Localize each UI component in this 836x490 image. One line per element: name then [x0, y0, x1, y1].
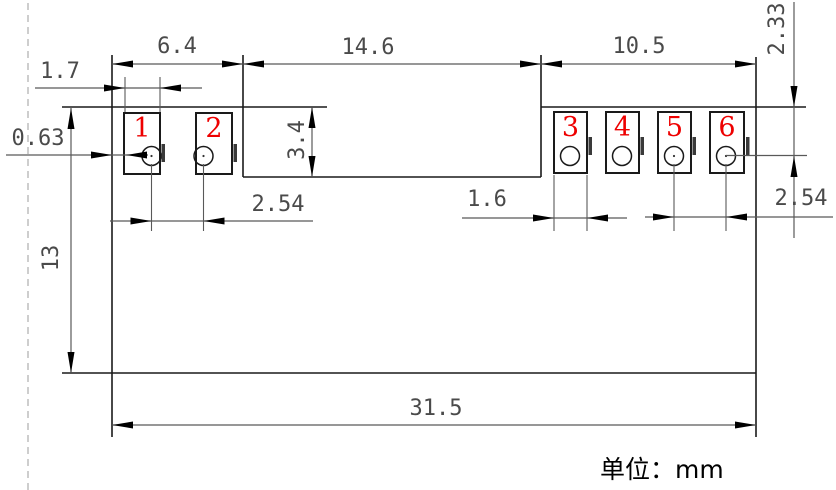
pad-4-stub	[641, 137, 645, 155]
arrow-2-33-bottom	[791, 156, 798, 177]
arrow-2-54-right-b	[726, 214, 747, 221]
pad-3-stub	[589, 137, 593, 155]
arrow-2-54-left-a	[131, 218, 152, 225]
dim-text-14-6: 14.6	[342, 35, 395, 60]
arrow-14-6-left	[243, 61, 264, 68]
arrow-1-6-b	[587, 215, 608, 222]
arrow-2-33-top	[791, 86, 798, 107]
arrow-13-bottom	[68, 352, 75, 373]
dimension-texts: 6.4 14.6 10.5 1.7 0.63 2.54 1.6 2.54 31.…	[12, 3, 828, 421]
dim-text-13: 13	[39, 245, 64, 272]
dim-text-2-54-right: 2.54	[775, 186, 828, 211]
arrow-0-63-left	[91, 152, 112, 159]
dimension-drawing-page: 1 2 3 4 5 6	[0, 0, 836, 490]
hole-1-center-dot	[150, 155, 152, 157]
pad-5-stub	[693, 137, 697, 155]
arrow-2-54-left-b	[204, 218, 225, 225]
hole-2-center-dot	[202, 155, 204, 157]
arrow-14-6-right	[520, 61, 541, 68]
arrow-10-5-right	[735, 61, 756, 68]
arrow-0-63-right	[126, 152, 147, 159]
hole-3	[561, 147, 580, 166]
pad-3-number: 3	[562, 112, 579, 143]
dim-text-2-54-left: 2.54	[252, 192, 305, 217]
arrow-1-6-a	[533, 215, 554, 222]
arrow-10-5-left	[541, 61, 562, 68]
arrow-1-7-left	[104, 85, 125, 92]
module-outline	[62, 55, 806, 437]
dim-text-2-33: 2.33	[765, 3, 790, 56]
pad-numbers: 1 2 3 4 5 6	[133, 112, 735, 144]
dim-text-31-5: 31.5	[410, 396, 463, 421]
pad-6-number: 6	[718, 112, 735, 143]
hole-5-center-dot	[673, 155, 675, 157]
dim-text-1-6: 1.6	[467, 187, 507, 212]
pad-2-stub	[234, 144, 238, 162]
pad-5-number: 5	[666, 112, 683, 143]
unit-note: 单位：mm	[600, 455, 724, 484]
pad-6-stub	[746, 137, 750, 155]
hole-4	[613, 147, 632, 166]
arrow-13-top	[68, 108, 75, 129]
pad-1-stub	[162, 144, 166, 162]
arrow-31-5-left	[112, 422, 133, 429]
dimension-drawing: 1 2 3 4 5 6	[0, 0, 836, 490]
dim-text-6-4: 6.4	[157, 34, 197, 59]
pad-4-number: 4	[614, 112, 631, 143]
arrow-6-4-left	[112, 61, 133, 68]
arrow-2-54-right-a	[653, 214, 674, 221]
dim-text-1-7: 1.7	[40, 59, 80, 84]
pad-2-number: 2	[205, 113, 222, 144]
arrow-6-4-right	[222, 61, 243, 68]
dim-text-10-5: 10.5	[613, 34, 666, 59]
pad-1-number: 1	[133, 113, 150, 144]
arrow-31-5-right	[735, 422, 756, 429]
arrow-1-7-right	[160, 85, 181, 92]
dim-text-0-63: 0.63	[12, 126, 65, 151]
dim-text-3-4: 3.4	[285, 120, 310, 160]
